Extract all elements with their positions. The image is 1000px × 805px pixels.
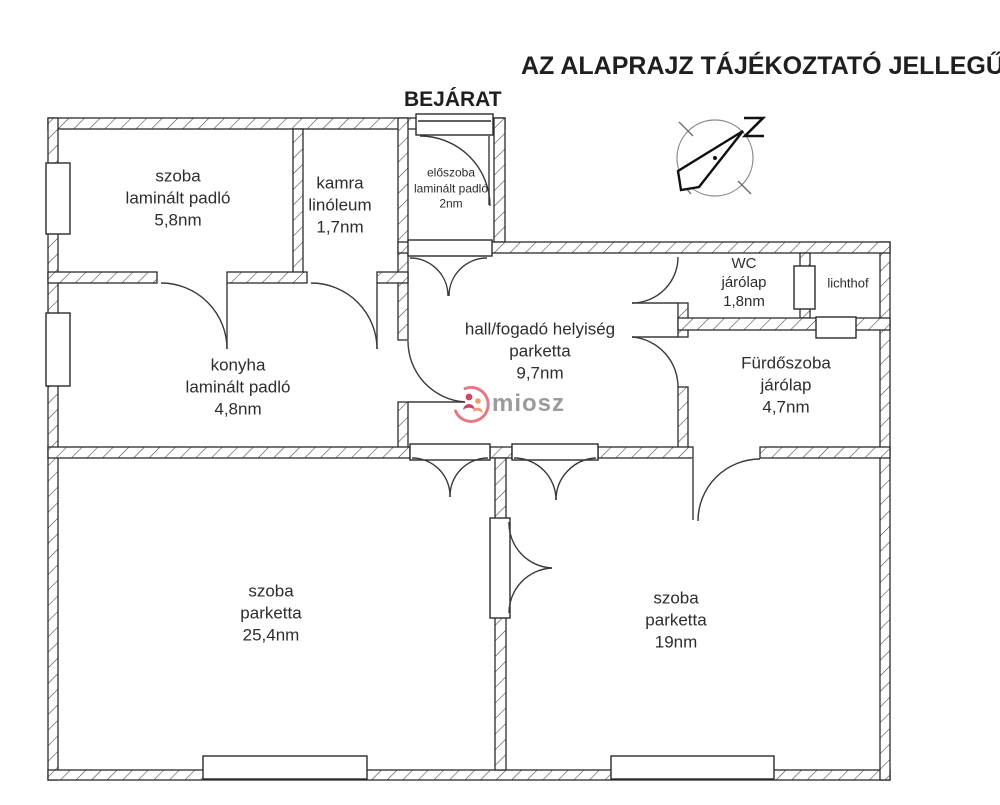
wall-mid-b [490, 447, 512, 458]
door-eloszoba-hall-left [410, 258, 448, 296]
room-area: 4,7nm [741, 396, 831, 418]
room-label-lichthof: lichthof [827, 276, 868, 293]
disclaimer-title: AZ ALAPRAJZ TÁJÉKOZTATÓ JELLEGŰ! [521, 52, 1000, 81]
wall-mid-a [48, 447, 410, 458]
room-name: szoba [126, 165, 231, 187]
room-name: Fürdőszoba [741, 352, 831, 374]
wall-konyha-top-b [227, 272, 307, 283]
floorplan-page: AZ ALAPRAJZ TÁJÉKOZTATÓ JELLEGŰ! BEJÁRAT… [0, 0, 1000, 805]
wall-konyha-top-c [377, 272, 408, 283]
window-szoba-58 [46, 163, 70, 234]
room-floor: laminált padló [414, 181, 488, 197]
door-wc-arc [632, 257, 678, 303]
threshold-hall-szoba-254 [410, 444, 490, 460]
room-floor: linóleum [308, 194, 371, 216]
door-eloszoba-hall-right [449, 258, 487, 296]
wall-szoba-kamra [293, 129, 303, 276]
wall-eloszoba-right [494, 118, 505, 242]
threshold-eloszoba-hall [408, 240, 492, 256]
room-label-hall: hall/fogadó helyiség parketta 9,7nm [465, 318, 615, 383]
miosz-logo-icon [456, 387, 489, 421]
window-lichthof-bath [816, 317, 856, 338]
room-label-eloszoba: előszoba laminált padló 2nm [414, 166, 488, 213]
room-floor: parketta [240, 602, 301, 624]
door-bathroom-arc [632, 337, 678, 387]
room-label-szoba-19: szoba parketta 19nm [645, 587, 706, 652]
room-name: előszoba [414, 166, 488, 182]
room-floor: laminált padló [186, 376, 291, 398]
window-szoba-19 [611, 756, 774, 779]
room-floor: járólap [721, 273, 766, 292]
room-area: 2nm [414, 197, 488, 213]
room-label-furdoszoba: Fürdőszoba járólap 4,7nm [741, 352, 831, 417]
wall-mid-d [760, 447, 890, 458]
room-floor: parketta [465, 340, 615, 362]
room-label-szoba-254: szoba parketta 25,4nm [240, 580, 301, 645]
entrance-label: BEJÁRAT [404, 88, 502, 112]
door-bedrooms-top [509, 522, 552, 568]
door-hall-szoba254-left [412, 458, 450, 497]
room-label-wc: WC járólap 1,8nm [721, 254, 766, 312]
room-name: szoba [240, 580, 301, 602]
wall-eloszoba-left [398, 118, 408, 340]
room-area: 5,8nm [126, 209, 231, 231]
room-area: 1,8nm [721, 293, 766, 312]
door-szoba58-arc [161, 283, 227, 349]
window-szoba-254 [203, 756, 367, 779]
window-konyha [46, 313, 70, 386]
room-area: 1,7nm [308, 216, 371, 238]
compass-north-icon [677, 118, 764, 196]
room-name: hall/fogadó helyiség [465, 318, 615, 340]
room-floor: parketta [645, 609, 706, 631]
room-label-konyha: konyha laminált padló 4,8nm [186, 354, 291, 419]
room-floor: járólap [741, 374, 831, 396]
room-area: 4,8nm [186, 398, 291, 420]
door-konyha-arc [408, 341, 465, 402]
room-area: 9,7nm [465, 362, 615, 384]
wall-mid-c [598, 447, 693, 458]
threshold-bedroom-divider [490, 518, 510, 618]
room-name: kamra [308, 172, 371, 194]
door-bedrooms-bottom [509, 568, 552, 613]
room-floor: laminált padló [126, 187, 231, 209]
watermark-brand: miosz [492, 390, 565, 418]
wall-konyha-top-a [48, 272, 157, 283]
room-name: WC [721, 254, 766, 273]
room-area: 19nm [645, 631, 706, 653]
wall-bedroom-divider-bottom [495, 616, 506, 770]
room-name: konyha [186, 354, 291, 376]
room-area: 25,4nm [240, 624, 301, 646]
wall-bedroom-divider-top [495, 458, 506, 520]
door-kamra-arc [311, 283, 377, 349]
door-hall-szoba19-right [556, 458, 596, 500]
room-name: szoba [645, 587, 706, 609]
door-hall-szoba19-left [514, 458, 556, 500]
threshold-hall-szoba-19 [512, 444, 598, 460]
room-label-kamra: kamra linóleum 1,7nm [308, 172, 371, 237]
room-label-szoba-58: szoba laminált padló 5,8nm [126, 165, 231, 230]
door-bath-szoba19-arc [698, 459, 760, 521]
room-name: lichthof [827, 276, 868, 293]
door-hall-szoba254-right [450, 458, 488, 497]
entrance-threshold [416, 114, 493, 135]
window-wc-lichthof [794, 266, 815, 309]
wall-wc-bottom [678, 318, 890, 330]
